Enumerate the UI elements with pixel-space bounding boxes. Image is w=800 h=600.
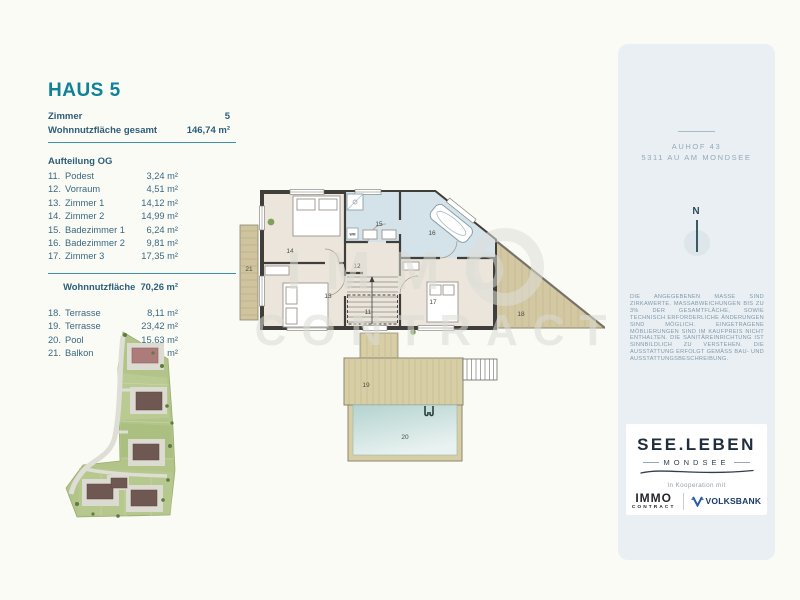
room-area: 17,35 m² bbox=[130, 250, 178, 263]
summary-label: Wohnnutzfläche gesamt bbox=[48, 124, 187, 138]
room-row: 11. Podest 3,24 m² bbox=[48, 170, 178, 183]
compass-north-label: N bbox=[618, 206, 775, 217]
room-row: 15. Badezimmer 1 6,24 m² bbox=[48, 224, 178, 237]
room-area: 8,11 m² bbox=[130, 307, 178, 320]
room-number: 16. bbox=[48, 237, 65, 250]
room-number: 12. bbox=[48, 183, 65, 196]
brand-place-label: MONDSEE bbox=[664, 458, 730, 467]
summary-row: Wohnnutzfläche gesamt 146,74 m² bbox=[48, 124, 230, 138]
room-area: 3,24 m² bbox=[130, 170, 178, 183]
svg-text:WM: WM bbox=[349, 233, 355, 237]
building: WM bbox=[260, 190, 496, 335]
partner-logos: IMMO CONTRACT VOLKSBANK bbox=[632, 492, 761, 510]
subtotal-row: Wohnnutzfläche 70,26 m² bbox=[48, 281, 178, 292]
outdoor-row: 18. Terrasse 8,11 m² bbox=[48, 307, 178, 320]
room-area: 14,12 m² bbox=[130, 197, 178, 210]
terrace-18 bbox=[495, 238, 605, 330]
room-area: 4,51 m² bbox=[130, 183, 178, 196]
room-name: Badezimmer 1 bbox=[65, 224, 130, 237]
address-line1: AUHOF 43 bbox=[618, 141, 775, 152]
compass: N bbox=[618, 206, 775, 217]
room-label-16: 16 bbox=[428, 230, 436, 237]
room-label-14: 14 bbox=[286, 248, 294, 255]
room-name: Terrasse bbox=[65, 307, 130, 320]
site-house-highlighted bbox=[132, 348, 158, 363]
summary-value: 146,74 m² bbox=[187, 124, 230, 138]
divider bbox=[643, 462, 659, 463]
subtotal-label: Wohnnutzfläche bbox=[63, 281, 135, 292]
room-number: 11. bbox=[48, 170, 65, 183]
room-area: 14,99 m² bbox=[130, 210, 178, 223]
room-row: 17. Zimmer 3 17,35 m² bbox=[48, 250, 178, 263]
divider bbox=[734, 462, 750, 463]
site-plan-svg bbox=[63, 328, 207, 528]
shower-icon bbox=[347, 194, 363, 210]
room-row: 13. Zimmer 1 14,12 m² bbox=[48, 197, 178, 210]
site-plan bbox=[63, 328, 207, 528]
section-title: Aufteilung OG bbox=[48, 156, 238, 167]
divider bbox=[48, 273, 236, 274]
room-number: 14. bbox=[48, 210, 65, 223]
terrace-19 bbox=[344, 331, 463, 407]
side-panel: AUHOF 43 5311 AU AM MONDSEE N DIE ANGEGE… bbox=[618, 44, 775, 560]
disclaimer-text: DIE ANGEGEBENEN MASSE SIND ZIRKAWERTE. M… bbox=[630, 294, 764, 363]
cooperation-label: In Kooperation mit bbox=[667, 482, 725, 489]
summary-row: Zimmer 5 bbox=[48, 110, 230, 124]
divider bbox=[678, 131, 715, 132]
room-label-17: 17 bbox=[429, 299, 437, 306]
room-label-11: 11 bbox=[365, 309, 372, 316]
wave-icon bbox=[638, 467, 756, 477]
listing-panel: HAUS 5 Zimmer 5 Wohnnutzfläche gesamt 14… bbox=[48, 80, 238, 360]
room-row: 14. Zimmer 2 14,99 m² bbox=[48, 210, 178, 223]
room-name: Zimmer 3 bbox=[65, 250, 130, 263]
plant-icon bbox=[268, 219, 275, 226]
room-label-18: 18 bbox=[517, 311, 525, 318]
room-name: Vorraum bbox=[65, 183, 130, 196]
room-label-15: 15 bbox=[375, 221, 383, 228]
summary-value: 5 bbox=[225, 110, 230, 124]
brand-name: SEE.LEBEN bbox=[637, 435, 756, 455]
address-line2: 5311 AU AM MONDSEE bbox=[618, 152, 775, 163]
room-area: 6,24 m² bbox=[130, 224, 178, 237]
brand-place: MONDSEE bbox=[643, 458, 751, 467]
room-name: Zimmer 1 bbox=[65, 197, 130, 210]
summary-label: Zimmer bbox=[48, 110, 225, 124]
room-name: Zimmer 2 bbox=[65, 210, 130, 223]
room-number: 15. bbox=[48, 224, 65, 237]
subtotal-value: 70,26 m² bbox=[135, 281, 178, 292]
immo-contract-logo: IMMO CONTRACT bbox=[632, 492, 676, 510]
compass-needle-icon bbox=[696, 220, 698, 252]
room-label-13: 13 bbox=[324, 293, 332, 300]
address-block: AUHOF 43 5311 AU AM MONDSEE bbox=[618, 141, 775, 163]
pool-20 bbox=[348, 405, 462, 461]
room-label-12: 12 bbox=[353, 263, 361, 270]
room-number: 13. bbox=[48, 197, 65, 210]
room-area: 9,81 m² bbox=[130, 237, 178, 250]
washing-machine-icon: WM bbox=[347, 228, 358, 239]
room-name: Podest bbox=[65, 170, 130, 183]
divider bbox=[48, 142, 236, 143]
room-number: 17. bbox=[48, 250, 65, 263]
room-row: 12. Vorraum 4,51 m² bbox=[48, 183, 178, 196]
volksbank-bird-icon bbox=[691, 495, 704, 507]
floor-plan-svg: WM 14 13 15 16 12 11 17 18 19 20 21 bbox=[235, 178, 605, 468]
room-name: Badezimmer 2 bbox=[65, 237, 130, 250]
divider bbox=[683, 493, 684, 510]
volksbank-logo: VOLKSBANK bbox=[691, 495, 762, 507]
room-label-19: 19 bbox=[362, 382, 370, 389]
floor-plan: WM 14 13 15 16 12 11 17 18 19 20 21 bbox=[235, 178, 605, 468]
exterior-stairs bbox=[463, 359, 497, 380]
room-label-20: 20 bbox=[401, 434, 409, 441]
room-label-21: 21 bbox=[245, 266, 253, 273]
brand-box: SEE.LEBEN MONDSEE In Kooperation mit IMM… bbox=[626, 424, 767, 515]
plant-icon bbox=[410, 329, 416, 335]
room-row: 16. Badezimmer 2 9,81 m² bbox=[48, 237, 178, 250]
room-number: 18. bbox=[48, 307, 65, 320]
page-title: HAUS 5 bbox=[48, 80, 238, 102]
